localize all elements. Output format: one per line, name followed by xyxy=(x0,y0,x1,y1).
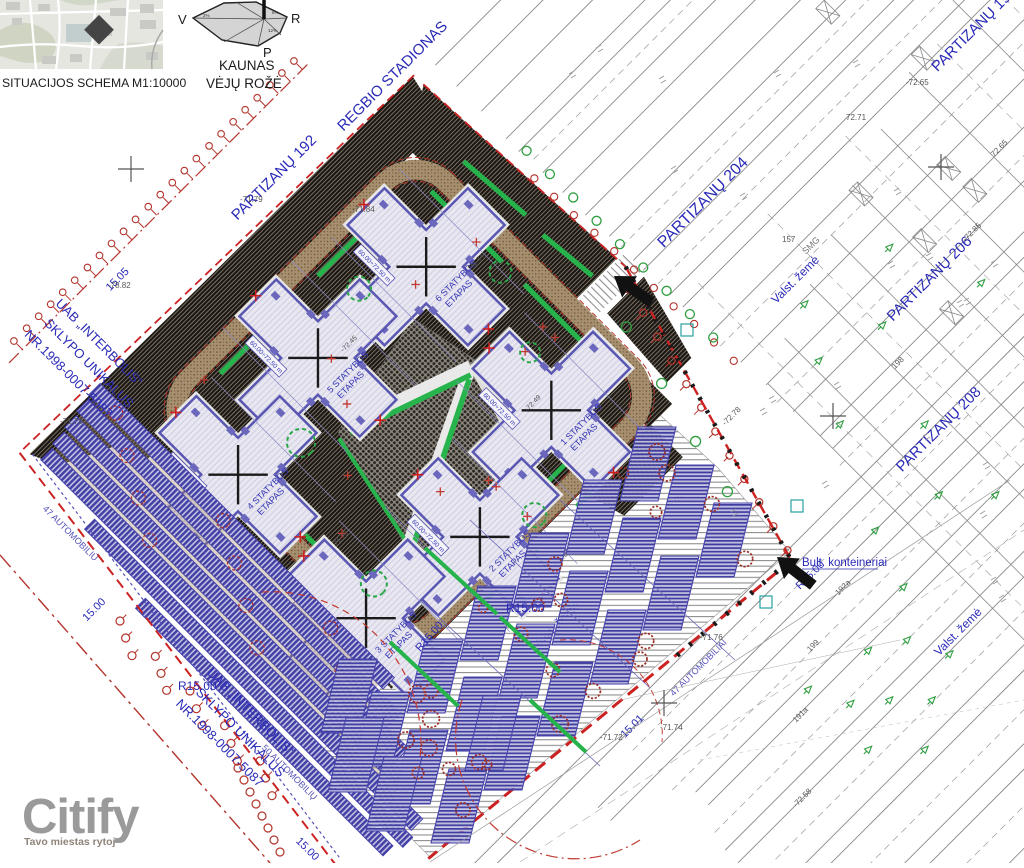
svg-text:V: V xyxy=(178,12,187,27)
svg-text:6%: 6% xyxy=(272,10,279,15)
svg-text:Bult. konteineriai: Bult. konteineriai xyxy=(802,557,887,569)
svg-text:-72.65: -72.65 xyxy=(906,78,929,87)
svg-text:-71.84: -71.84 xyxy=(352,205,375,214)
svg-text:72.71: 72.71 xyxy=(846,113,867,122)
svg-text:-78.82: -78.82 xyxy=(108,281,131,290)
svg-text:-71.72: -71.72 xyxy=(600,733,623,742)
svg-text:R15.00: R15.00 xyxy=(506,601,545,615)
svg-text:12%: 12% xyxy=(268,28,277,33)
svg-text:VĖJŲ ROŽĖ: VĖJŲ ROŽĖ xyxy=(206,76,282,91)
svg-text:R15.00: R15.00 xyxy=(178,679,217,693)
svg-text:2%: 2% xyxy=(203,13,210,18)
svg-text:Tavo miestas rytoj: Tavo miestas rytoj xyxy=(24,836,116,848)
svg-text:-71.76: -71.76 xyxy=(700,633,723,642)
svg-text:KAUNAS: KAUNAS xyxy=(219,58,275,73)
svg-text:R: R xyxy=(291,11,300,26)
svg-text:-71.79: -71.79 xyxy=(60,417,83,426)
svg-text:SITUACIJOS SCHEMA M1:10000: SITUACIJOS SCHEMA M1:10000 xyxy=(2,76,186,90)
svg-text:-71.74: -71.74 xyxy=(660,723,683,732)
svg-text:157: 157 xyxy=(782,235,796,244)
svg-text:-71.79: -71.79 xyxy=(240,195,263,204)
